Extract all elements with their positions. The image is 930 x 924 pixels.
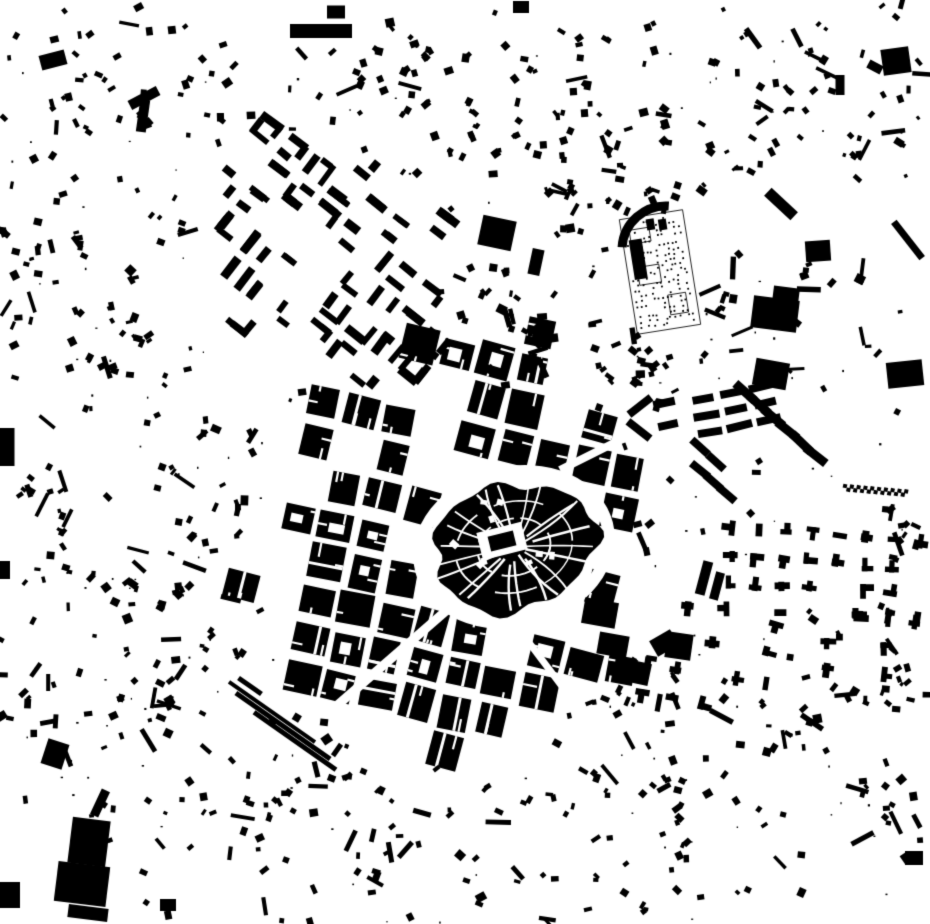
- figure-ground-map-page: [0, 0, 930, 924]
- city-figure-ground-canvas: [0, 0, 930, 924]
